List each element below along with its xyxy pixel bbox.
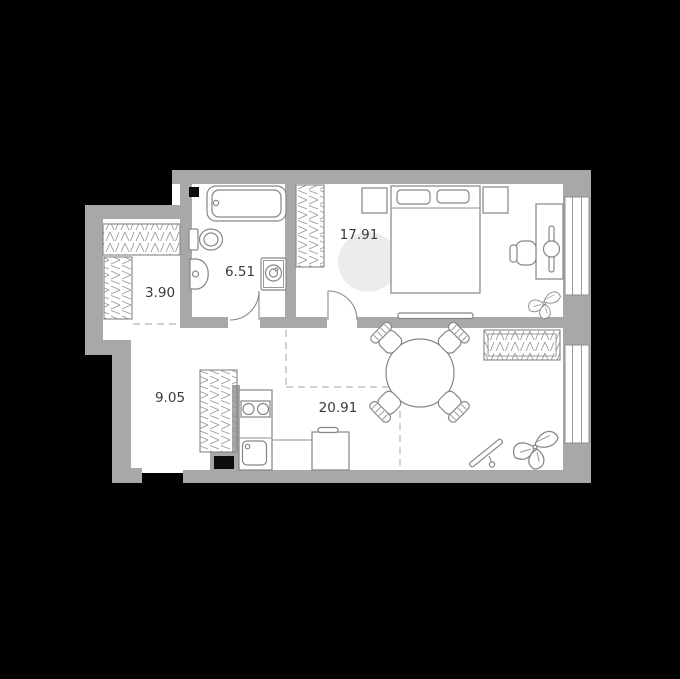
pillow [397,190,430,204]
room-label-bathroom: 6.51 [225,264,255,280]
wardrobe-left [104,257,132,319]
duct-shaft-kitchen [214,456,234,469]
oven-unit [312,428,349,471]
floor-plan: 3.90 6.51 17.91 9.05 20.91 [0,0,680,679]
wardrobe-top [103,224,180,255]
kitchen-cabinet [200,370,237,452]
room-label-hallway: 9.05 [155,390,185,406]
toilet [189,229,223,250]
entrance-opening [142,473,183,483]
desk-chair [510,241,536,265]
wardrobe-bedroom [296,185,324,267]
stove [241,401,270,417]
tv-bedroom [398,313,473,319]
bathtub [207,186,286,221]
kitchen-sink [243,441,267,465]
pillow [437,190,469,203]
nightstand-right [483,187,508,213]
washing-machine [261,258,286,290]
room-label-wardrobe: 3.90 [145,285,175,301]
room-label-living-kitchen: 20.91 [319,400,358,416]
window-bedroom [565,197,589,295]
bathroom-sink [190,259,208,289]
desk [536,204,563,279]
duct-shaft-bathroom [189,187,199,197]
wardrobe-living [484,330,560,360]
nightstand-left [362,188,387,213]
floor-plan-canvas: 3.90 6.51 17.91 9.05 20.91 [0,0,680,679]
room-label-bedroom: 17.91 [340,227,379,243]
bed [391,186,480,293]
window-living [565,345,589,443]
